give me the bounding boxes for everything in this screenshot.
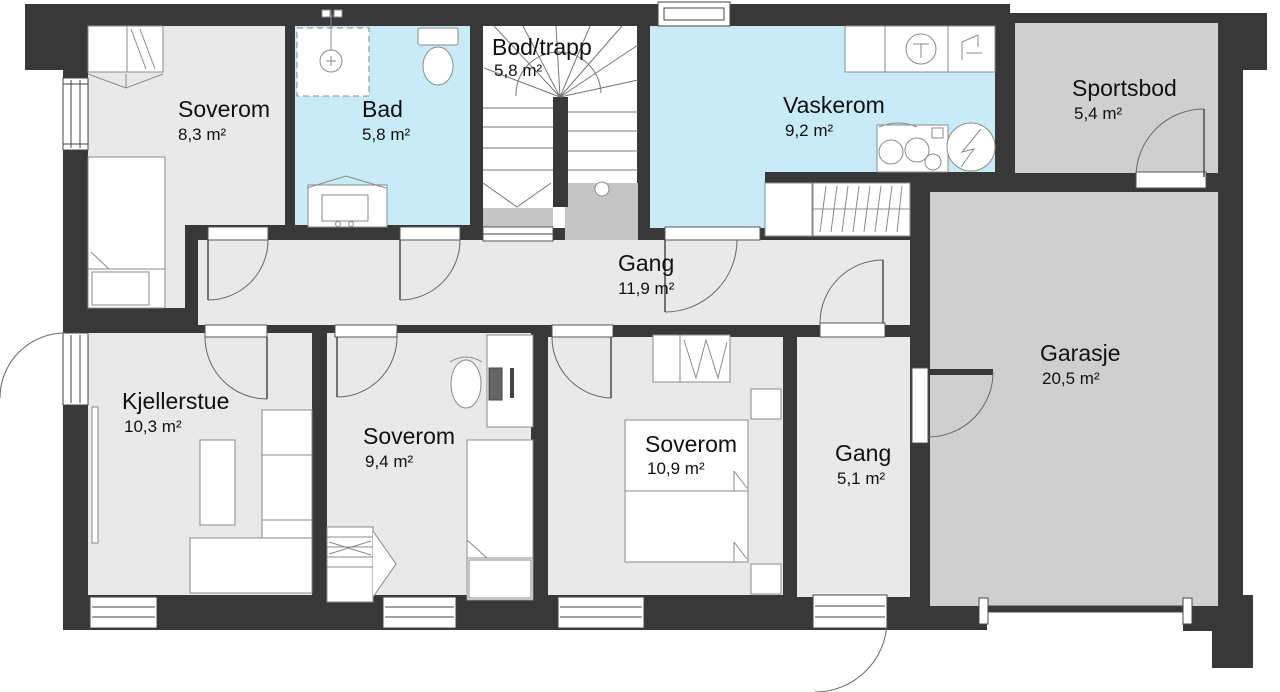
soverom1-furniture	[88, 26, 165, 308]
label-vaskerom: Vaskerom	[783, 92, 885, 118]
hall-closet-icon	[765, 183, 910, 236]
room-gang1	[198, 240, 910, 325]
window-soverom3	[558, 597, 644, 628]
area-soverom1: 8,3 m²	[178, 125, 227, 144]
wall-pillar	[1212, 595, 1253, 668]
room-garasje	[930, 192, 1218, 606]
label-gang2: Gang	[835, 440, 891, 466]
garage-opening-cutout	[987, 612, 1183, 692]
nightstand-icon	[751, 389, 781, 419]
washing-machine-icon	[877, 123, 948, 172]
area-gang2: 5,1 m²	[837, 469, 886, 488]
area-kjellerstue: 10,3 m²	[124, 417, 182, 436]
entry-door-south	[813, 595, 887, 692]
window-west	[63, 78, 88, 150]
nightstand-icon	[751, 564, 781, 594]
label-kjellerstue: Kjellerstue	[122, 388, 229, 414]
room-vaskerom-ext	[650, 26, 765, 228]
stair-column	[595, 182, 609, 196]
label-bod-trapp: Bod/trapp	[492, 34, 592, 60]
area-soverom2: 9,4 m²	[365, 452, 414, 471]
entry-door-west	[0, 333, 88, 405]
floor-plan: Soverom 8,3 m² Bad 5,8 m² Bod/trapp 5,8 …	[0, 0, 1280, 692]
label-soverom3: Soverom	[645, 431, 737, 457]
label-garasje: Garasje	[1040, 340, 1121, 366]
vent-top	[658, 2, 730, 26]
label-bad: Bad	[362, 96, 403, 122]
label-soverom1: Soverom	[178, 96, 270, 122]
coffee-table-icon	[200, 440, 235, 525]
stair-lower-strip	[483, 208, 553, 228]
laundry-counter-icon	[845, 26, 995, 72]
area-garasje: 20,5 m²	[1042, 369, 1100, 388]
area-bad: 5,8 m²	[362, 125, 411, 144]
desk-icon	[487, 335, 533, 427]
area-soverom3: 10,9 m²	[647, 459, 705, 478]
window-kjellerstue	[90, 597, 157, 628]
tv-icon	[92, 407, 98, 543]
area-vaskerom: 9,2 m²	[785, 121, 834, 140]
label-soverom2: Soverom	[363, 423, 455, 449]
label-gang1: Gang	[618, 250, 674, 276]
bed-icon	[467, 440, 533, 600]
area-bod-trapp: 5,8 m²	[494, 61, 543, 80]
area-sportsbod: 5,4 m²	[1074, 104, 1123, 123]
stair-newel-wall	[553, 97, 568, 207]
wardrobe-icon	[653, 335, 730, 382]
water-heater-icon	[947, 123, 995, 171]
window-soverom2	[383, 597, 456, 628]
label-sportsbod: Sportsbod	[1072, 75, 1177, 101]
area-gang1: 11,9 m²	[618, 279, 675, 298]
floor-plan-page: Soverom 8,3 m² Bad 5,8 m² Bod/trapp 5,8 …	[0, 0, 1280, 692]
bed-icon	[88, 157, 165, 308]
room-gang2	[797, 337, 910, 597]
